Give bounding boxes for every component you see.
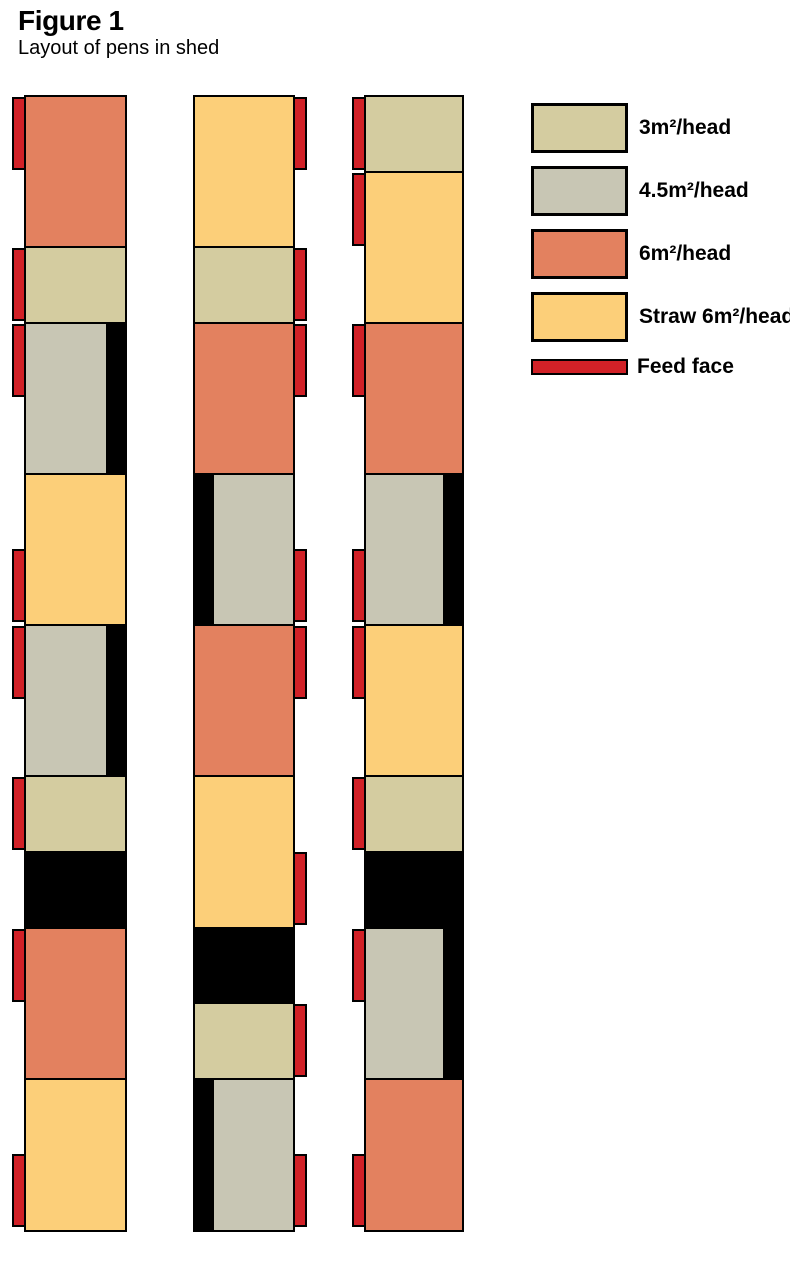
- pen-45m-head: [193, 473, 295, 627]
- pen-6m-head: [193, 624, 295, 778]
- pen-straw-6m-head: [193, 775, 295, 930]
- pen-6m-head: [364, 322, 464, 476]
- legend-label: Straw 6m²/head: [639, 305, 790, 329]
- legend: 3m²/head4.5m²/head6m²/headStraw 6m²/head…: [531, 103, 790, 392]
- passage-strip: [106, 626, 125, 776]
- pen-3m-head: [24, 775, 127, 854]
- pen-straw-6m-head: [24, 473, 127, 627]
- pen-straw-6m-head: [24, 1078, 127, 1232]
- passage-strip: [195, 475, 214, 625]
- pen-3m-head: [24, 246, 127, 325]
- pen-45m-head: [364, 473, 464, 627]
- legend-swatch-straw: [531, 292, 628, 342]
- passage-strip: [443, 475, 462, 625]
- passage-strip: [106, 324, 125, 474]
- pen-6m-head: [24, 95, 127, 249]
- pen-3m-head: [193, 246, 295, 325]
- passage-strip: [443, 929, 462, 1079]
- pen-45m-head: [24, 624, 127, 778]
- pen-6m-head: [24, 927, 127, 1081]
- passage-block: [24, 851, 127, 930]
- pen-6m-head: [364, 1078, 464, 1232]
- legend-item-pen_45m: 4.5m²/head: [531, 166, 790, 216]
- legend-label: 4.5m²/head: [639, 179, 749, 203]
- legend-swatch-pen_3m: [531, 103, 628, 153]
- pen-straw-6m-head: [364, 171, 464, 325]
- legend-swatch-pen_45m: [531, 166, 628, 216]
- legend-item-straw: Straw 6m²/head: [531, 292, 790, 342]
- legend-label: 3m²/head: [639, 116, 731, 140]
- passage-block: [193, 927, 295, 1005]
- passage-block: [364, 851, 464, 930]
- legend-swatch-feed_face: [531, 359, 628, 375]
- legend-label: Feed face: [637, 355, 734, 379]
- pen-straw-6m-head: [193, 95, 295, 249]
- legend-item-feed_face: Feed face: [531, 355, 790, 379]
- legend-label: 6m²/head: [639, 242, 731, 266]
- pen-45m-head: [193, 1078, 295, 1232]
- passage-strip: [195, 1080, 214, 1230]
- pen-6m-head: [193, 322, 295, 476]
- legend-item-pen_6m: 6m²/head: [531, 229, 790, 279]
- pen-3m-head: [364, 775, 464, 854]
- pen-45m-head: [364, 927, 464, 1081]
- pen-straw-6m-head: [364, 624, 464, 778]
- legend-swatch-pen_6m: [531, 229, 628, 279]
- legend-item-pen_3m: 3m²/head: [531, 103, 790, 153]
- pen-45m-head: [24, 322, 127, 476]
- pen-3m-head: [193, 1002, 295, 1081]
- pen-3m-head: [364, 95, 464, 174]
